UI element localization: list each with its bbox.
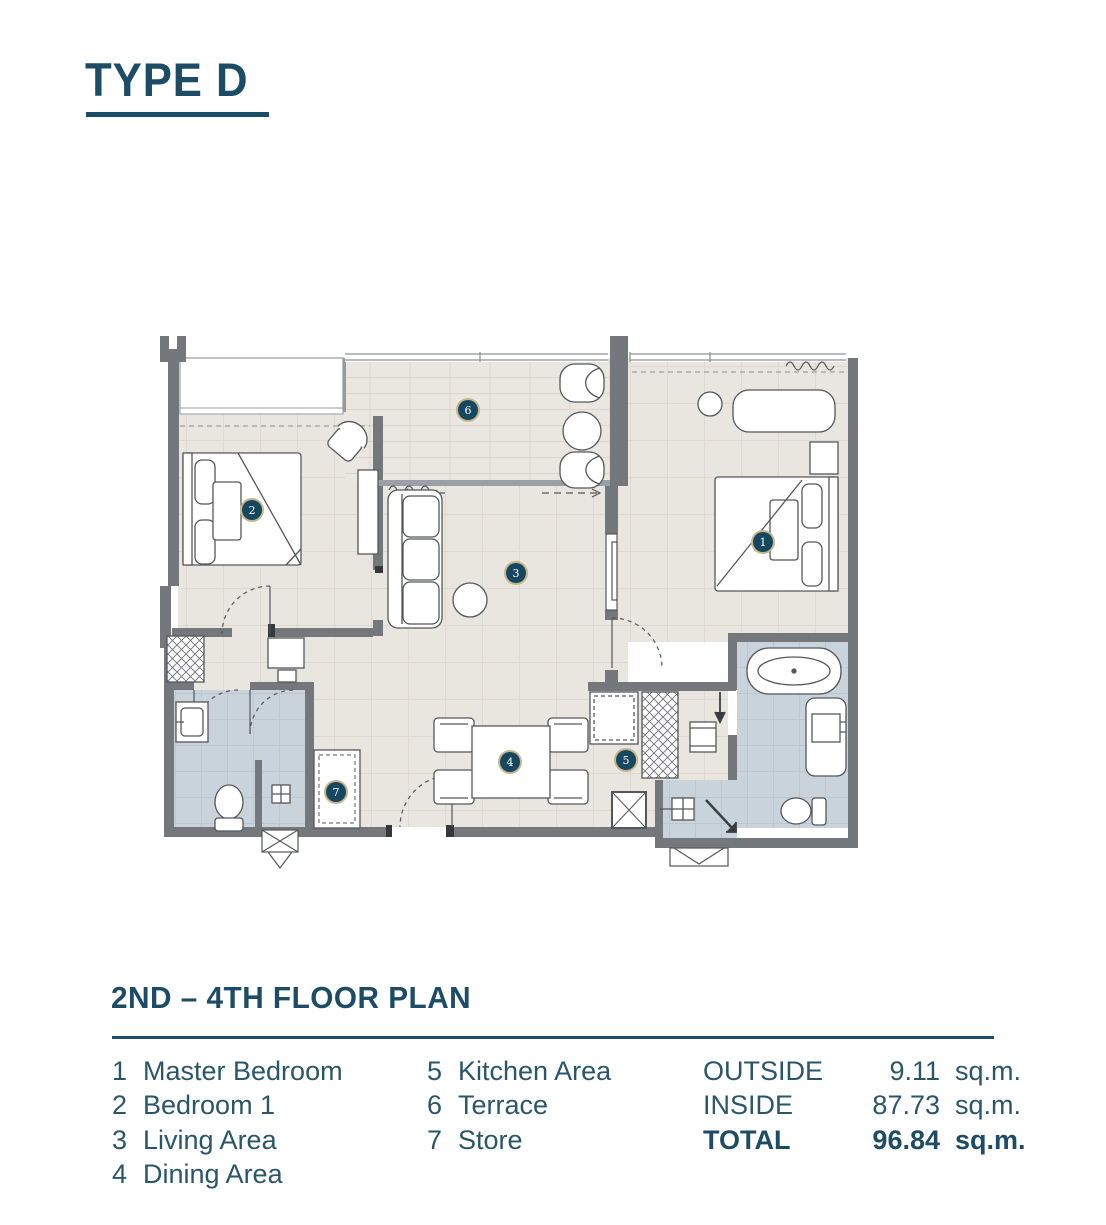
area-row-outside: OUTSIDE9.11sq.m. <box>703 1054 1026 1089</box>
legend-item-2: 2Bedroom 1 <box>112 1089 343 1124</box>
bathtub-icon <box>747 648 841 694</box>
pantry-cabinet-icon <box>642 692 678 778</box>
area-aunit: sq.m. <box>955 1056 1021 1087</box>
wall-notch <box>169 336 177 349</box>
legend-item-number: 6 <box>427 1090 458 1121</box>
legend-item-6: 6Terrace <box>427 1089 611 1124</box>
area-row-inside: INSIDE87.73sq.m. <box>703 1089 1026 1124</box>
legend-item-label: Master Bedroom <box>143 1056 343 1087</box>
legend-item-label: Living Area <box>143 1125 277 1156</box>
area-aunit: sq.m. <box>955 1090 1021 1121</box>
legend-item-label: Store <box>458 1125 523 1156</box>
sliding-panels <box>606 534 617 610</box>
area-alabel: TOTAL <box>703 1125 858 1156</box>
room-badge-6: 6 <box>456 398 480 422</box>
shower-icon-guest <box>272 785 290 803</box>
area-avalue: 87.73 <box>858 1090 940 1121</box>
legend-item-number: 2 <box>112 1090 143 1121</box>
svg-text:3: 3 <box>513 567 520 580</box>
area-avalue: 96.84 <box>858 1125 940 1156</box>
title-underline <box>86 112 269 117</box>
legend-item-label: Terrace <box>458 1090 548 1121</box>
svg-text:5: 5 <box>623 754 630 767</box>
kitchen-stool-icon <box>690 722 716 752</box>
legend-col-2: 5Kitchen Area6Terrace7Store <box>427 1054 611 1158</box>
floor-plan: 1234567 <box>150 330 870 870</box>
legend-item-label: Bedroom 1 <box>143 1090 275 1121</box>
area-table: OUTSIDE9.11sq.m.INSIDE87.73sq.m.TOTAL96.… <box>703 1054 1026 1158</box>
terrace-chair-icon-2 <box>560 452 604 488</box>
terrace-table-icon <box>563 412 601 450</box>
legend-item-label: Dining Area <box>143 1159 283 1190</box>
toilet-icon-guest <box>215 785 243 831</box>
legend-item-number: 5 <box>427 1056 458 1087</box>
console-icon <box>358 470 378 554</box>
room-badge-7: 7 <box>324 780 348 804</box>
terrace-chair-icon <box>560 364 604 402</box>
stool-icon <box>698 392 722 416</box>
page-title: TYPE D <box>85 52 248 107</box>
room-badge-1: 1 <box>751 530 775 554</box>
kitchen-counter-icon <box>590 692 638 744</box>
bench-icon <box>733 390 835 432</box>
legend-item-4: 4Dining Area <box>112 1158 343 1193</box>
svg-text:2: 2 <box>249 504 256 517</box>
wardrobe-icon <box>167 636 204 682</box>
legend-item-1: 1Master Bedroom <box>112 1054 343 1089</box>
legend-item-7: 7Store <box>427 1123 611 1158</box>
coffee-table-icon <box>453 583 487 617</box>
area-alabel: OUTSIDE <box>703 1056 858 1087</box>
floor-plan-svg: 1234567 <box>150 330 870 870</box>
legend-item-3: 3Living Area <box>112 1123 343 1158</box>
sink-icon-guest <box>176 702 208 742</box>
nightstand-icon <box>810 442 838 474</box>
room-badge-4: 4 <box>498 750 522 774</box>
shaft-icon <box>612 792 646 828</box>
svg-text:4: 4 <box>507 756 514 769</box>
area-avalue: 9.11 <box>858 1056 940 1087</box>
area-aunit: sq.m. <box>955 1125 1026 1156</box>
section-rule <box>112 1036 994 1039</box>
legend-col-1: 1Master Bedroom2Bedroom 13Living Area4Di… <box>112 1054 343 1192</box>
legend-item-number: 4 <box>112 1159 143 1190</box>
svg-text:1: 1 <box>760 536 767 549</box>
legend-item-number: 7 <box>427 1125 458 1156</box>
area-row-total: TOTAL96.84sq.m. <box>703 1123 1026 1158</box>
legend-item-label: Kitchen Area <box>458 1056 611 1087</box>
room-badge-2: 2 <box>240 498 264 522</box>
legend-item-5: 5Kitchen Area <box>427 1054 611 1089</box>
room-badge-5: 5 <box>614 748 638 772</box>
svg-text:7: 7 <box>333 786 340 799</box>
legend-item-number: 3 <box>112 1125 143 1156</box>
legend-item-number: 1 <box>112 1056 143 1087</box>
sofa-icon <box>388 490 442 628</box>
room-badge-3: 3 <box>504 561 528 585</box>
section-heading: 2ND – 4TH FLOOR PLAN <box>111 980 471 1016</box>
toilet-icon-master <box>781 798 826 825</box>
bay-window <box>180 358 346 414</box>
vanity-icon <box>806 698 846 776</box>
bed-icon-master <box>715 477 838 591</box>
area-alabel: INSIDE <box>703 1090 858 1121</box>
svg-text:6: 6 <box>465 404 472 417</box>
